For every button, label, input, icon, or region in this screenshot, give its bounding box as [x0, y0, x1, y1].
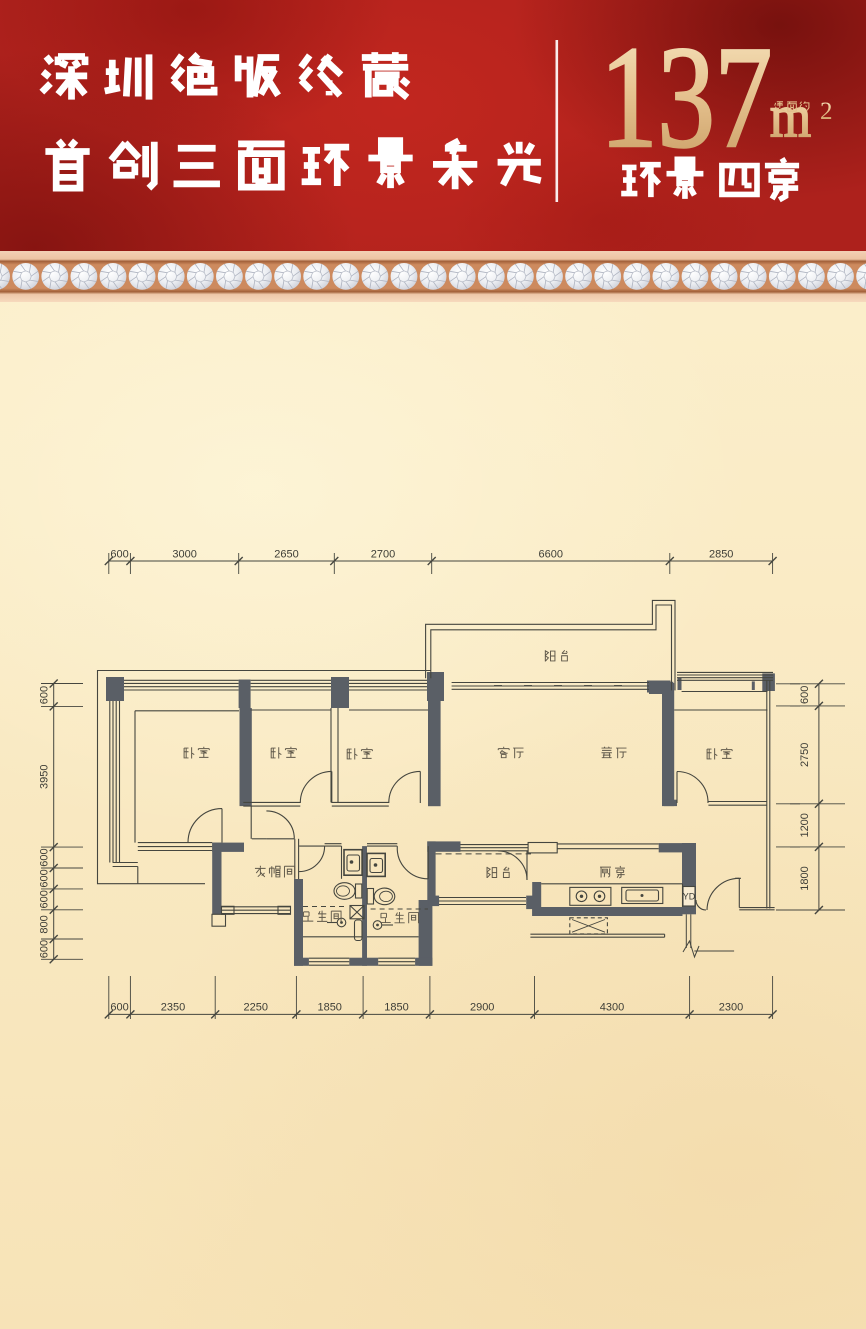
svg-text:600: 600	[39, 940, 51, 958]
svg-text:600: 600	[39, 686, 51, 704]
svg-text:2300: 2300	[719, 1002, 743, 1014]
svg-text:600: 600	[39, 848, 51, 866]
svg-text:1850: 1850	[317, 1002, 341, 1014]
svg-text:1800: 1800	[799, 866, 811, 890]
svg-text:3000: 3000	[172, 549, 196, 561]
svg-text:2850: 2850	[709, 549, 733, 561]
svg-text:2350: 2350	[161, 1002, 185, 1014]
svg-text:600: 600	[39, 869, 51, 887]
svg-text:600: 600	[799, 686, 811, 704]
svg-text:800: 800	[39, 915, 51, 933]
svg-text:600: 600	[110, 549, 128, 561]
svg-text:1200: 1200	[799, 813, 811, 837]
svg-text:1850: 1850	[384, 1002, 408, 1014]
svg-text:m: m	[770, 85, 811, 151]
svg-text:600: 600	[110, 1002, 128, 1014]
svg-text:3950: 3950	[39, 764, 51, 788]
svg-text:YD: YD	[683, 892, 696, 902]
svg-text:4300: 4300	[600, 1002, 624, 1014]
svg-text:2900: 2900	[470, 1002, 494, 1014]
svg-text:2650: 2650	[274, 549, 298, 561]
svg-text:2700: 2700	[371, 549, 395, 561]
svg-text:6600: 6600	[539, 549, 563, 561]
svg-text:2250: 2250	[244, 1002, 268, 1014]
svg-text:2: 2	[820, 98, 833, 125]
svg-text:600: 600	[39, 890, 51, 908]
svg-text:137: 137	[600, 17, 772, 178]
svg-text:2750: 2750	[799, 743, 811, 767]
